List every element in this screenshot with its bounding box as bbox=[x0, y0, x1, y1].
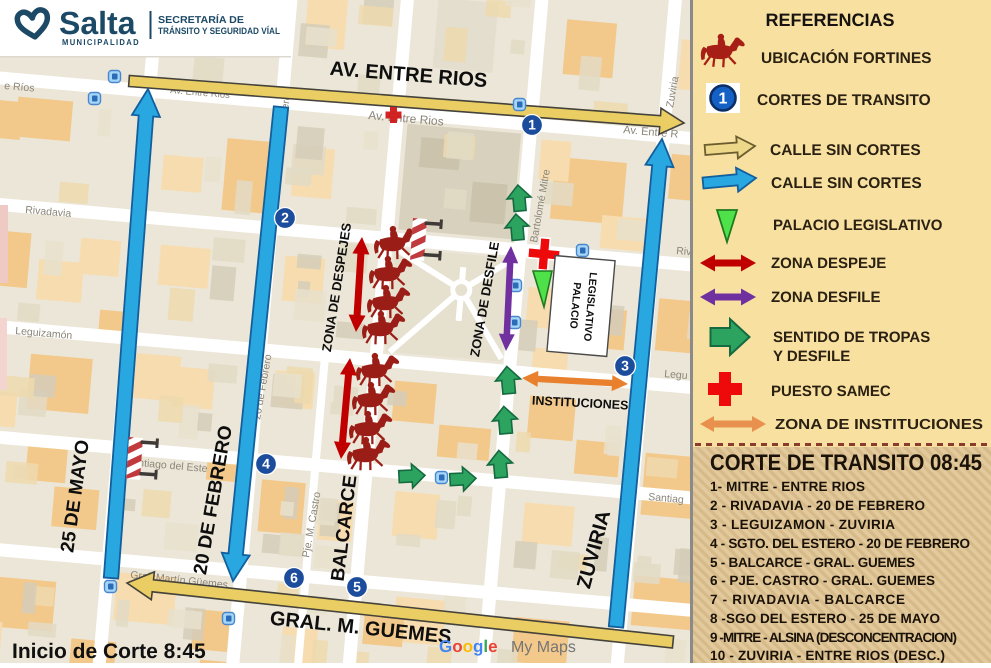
svg-text:Legu: Legu bbox=[664, 368, 688, 382]
svg-text:ZONA DESFILE: ZONA DESFILE bbox=[771, 289, 880, 306]
svg-text:6 - PJE. CASTRO - GRAL. GUEMES: 6 - PJE. CASTRO - GRAL. GUEMES bbox=[710, 573, 935, 588]
svg-text:4: 4 bbox=[262, 456, 270, 472]
svg-text:UBICACIÓN FORTINES: UBICACIÓN FORTINES bbox=[761, 49, 932, 67]
svg-text:CALLE SIN CORTES: CALLE SIN CORTES bbox=[770, 142, 921, 159]
svg-text:REFERENCIAS: REFERENCIAS bbox=[765, 10, 894, 30]
svg-text:ZONA DESPEJE: ZONA DESPEJE bbox=[771, 255, 886, 272]
svg-text:3 - LEGUIZAMON - ZUVIRIA: 3 - LEGUIZAMON - ZUVIRIA bbox=[710, 517, 895, 532]
svg-text:CORTE DE TRANSITO 08:45: CORTE DE TRANSITO 08:45 bbox=[710, 450, 982, 475]
svg-text:Y DESFILE: Y DESFILE bbox=[773, 348, 850, 365]
svg-text:8 -SGO DEL ESTERO - 25 DE MAYO: 8 -SGO DEL ESTERO - 25 DE MAYO bbox=[710, 611, 940, 626]
svg-text:TRÁNSITO Y SEGURIDAD VÍAL: TRÁNSITO Y SEGURIDAD VÍAL bbox=[158, 25, 280, 36]
svg-text:3: 3 bbox=[621, 358, 629, 374]
svg-text:6: 6 bbox=[290, 570, 298, 586]
svg-text:1: 1 bbox=[719, 91, 728, 108]
svg-text:Salta: Salta bbox=[59, 5, 136, 41]
svg-text:Inicio de Corte 8:45: Inicio de Corte 8:45 bbox=[12, 640, 206, 663]
svg-text:My Maps: My Maps bbox=[511, 639, 576, 656]
svg-text:CALLE SIN CORTES: CALLE SIN CORTES bbox=[771, 175, 922, 192]
svg-text:SENTIDO DE TROPAS: SENTIDO DE TROPAS bbox=[773, 329, 930, 346]
svg-text:1: 1 bbox=[528, 117, 536, 133]
svg-text:MUNICIPALIDAD: MUNICIPALIDAD bbox=[62, 37, 140, 47]
svg-text:2: 2 bbox=[281, 210, 289, 226]
svg-text:4 - SGTO. DEL ESTERO - 20 DE F: 4 - SGTO. DEL ESTERO - 20 DE FEBRERO bbox=[710, 536, 970, 551]
svg-text:Google: Google bbox=[439, 637, 498, 656]
svg-text:CORTES DE TRANSITO: CORTES DE TRANSITO bbox=[757, 92, 931, 109]
svg-text:ZONA DE INSTITUCIONES: ZONA DE INSTITUCIONES bbox=[775, 417, 983, 433]
svg-text:9 -MITRE - ALSINA (DESCONCENTR: 9 -MITRE - ALSINA (DESCONCENTRACION) bbox=[710, 630, 957, 645]
svg-text:PUESTO SAMEC: PUESTO SAMEC bbox=[771, 383, 891, 400]
svg-text:2 - RIVADAVIA - 20 DE FEBRERO: 2 - RIVADAVIA - 20 DE FEBRERO bbox=[710, 498, 925, 513]
svg-text:SECRETARÍA DE: SECRETARÍA DE bbox=[158, 14, 244, 26]
svg-text:1- MITRE - ENTRE RIOS: 1- MITRE - ENTRE RIOS bbox=[710, 479, 865, 494]
svg-text:5: 5 bbox=[353, 579, 361, 595]
svg-text:10 - ZUVIRIA - ENTRE RIOS (DES: 10 - ZUVIRIA - ENTRE RIOS (DESC.) bbox=[710, 648, 945, 663]
svg-text:7 - RIVADAVIA - BALCARCE: 7 - RIVADAVIA - BALCARCE bbox=[710, 592, 905, 607]
svg-text:5 - BALCARCE - GRAL. GUEMES: 5 - BALCARCE - GRAL. GUEMES bbox=[710, 555, 915, 570]
svg-text:PALACIO LEGISLATIVO: PALACIO LEGISLATIVO bbox=[773, 217, 943, 234]
